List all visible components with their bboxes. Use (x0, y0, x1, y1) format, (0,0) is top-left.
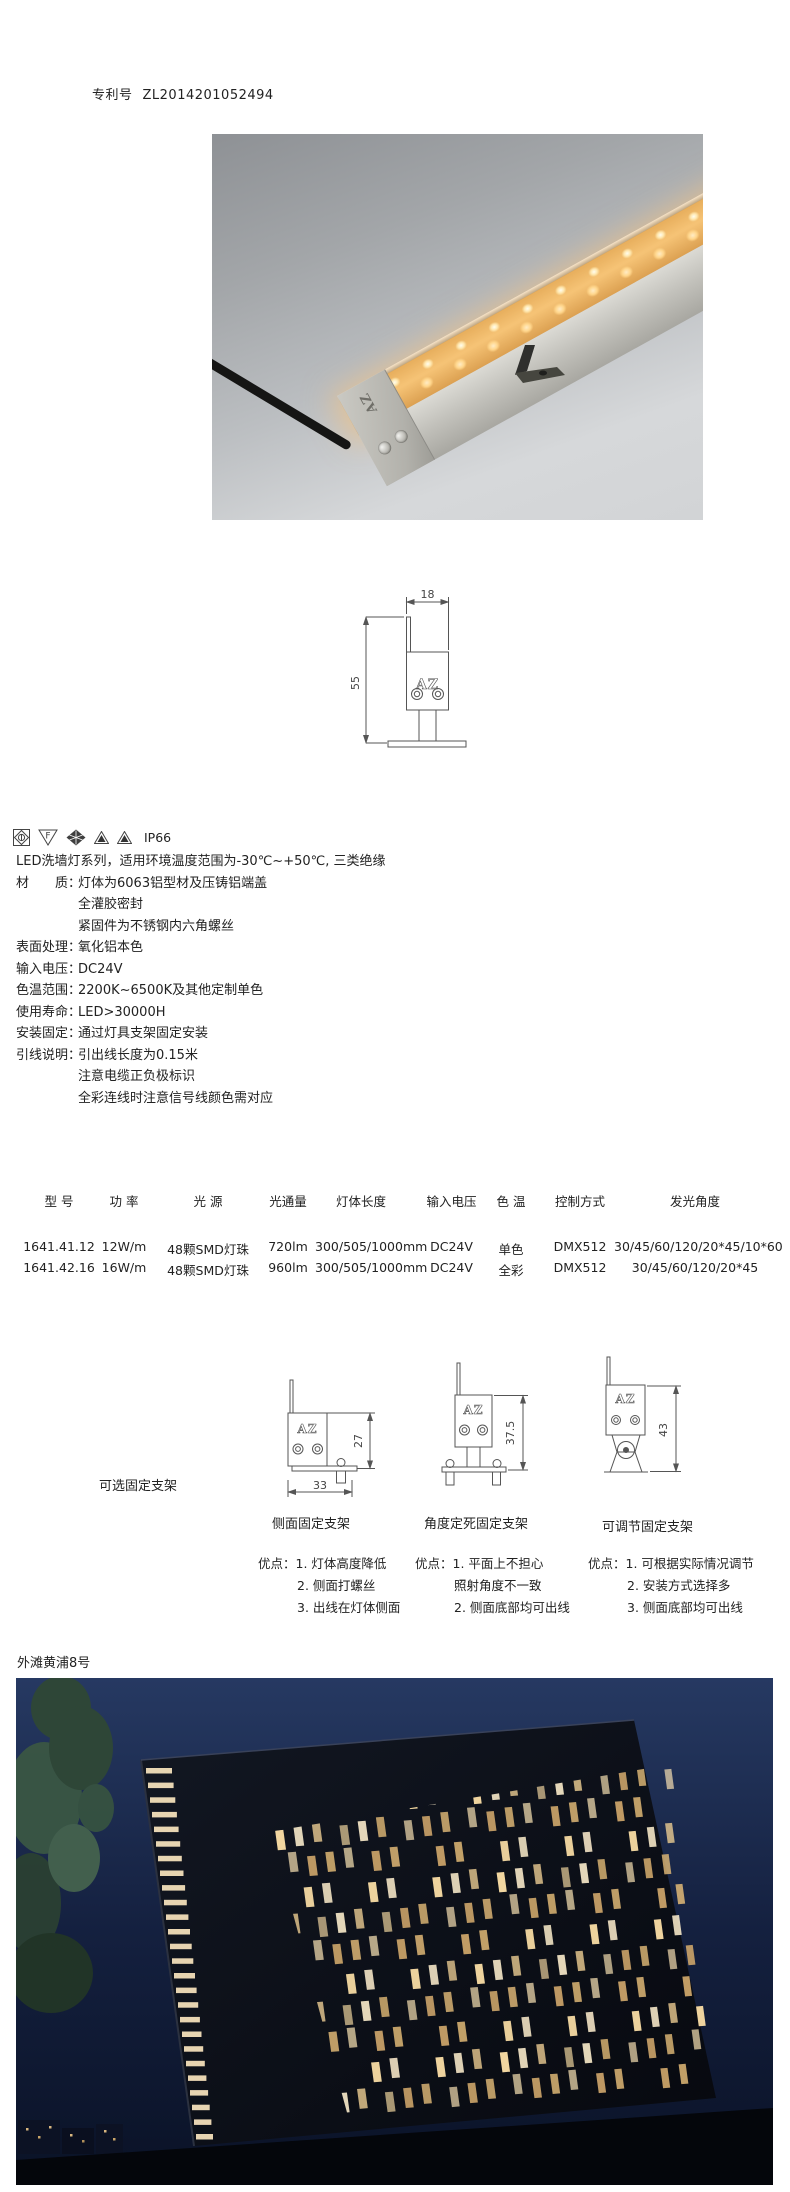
bracket-advantages-3: 优点：1. 可根据实际情况调节 2. 安装方式选择多 3. 侧面底部均可出线 (588, 1553, 754, 1619)
table-cell: 48颗SMD灯珠 (163, 1239, 253, 1260)
flame-triangle-mark-icon (117, 831, 132, 844)
flame-triangle-mark-icon (94, 831, 109, 844)
dim-width-label: 18 (421, 588, 435, 601)
column-power: 功 率 12W/m 16W/m (96, 1191, 152, 1281)
spec-row: 注意电缆正负极标识 (16, 1065, 386, 1087)
brackets-section-label: 可选固定支架 (99, 1475, 177, 1494)
spec-row: 使用寿命：LED>30000H (16, 1001, 386, 1023)
patent-label: 专利号 (92, 88, 133, 103)
bracket-adjustable-drawing: AZ 43 (604, 1357, 681, 1472)
drawing-fin (407, 617, 411, 652)
building-facade (141, 1720, 716, 2146)
column-light-source: 光 源 48颗SMD灯珠 48颗SMD灯珠 (163, 1191, 253, 1281)
column-input-voltage: 输入电压 DC24V DC24V (424, 1191, 479, 1281)
bracket-height-dim: 43 (657, 1423, 670, 1437)
brand-logo: AZ (415, 677, 439, 693)
drawing-stem (419, 710, 436, 741)
table-cell: 30/45/60/120/20*45 (614, 1260, 776, 1281)
table-cell: 300/505/1000mm (315, 1260, 407, 1281)
advantages-label: 优点： (415, 1556, 453, 1571)
bracket-caption: 侧面固定支架 (272, 1513, 350, 1532)
brand-logo: AZ (357, 390, 381, 416)
table-cell: 30/45/60/120/20*45/10*60 (614, 1239, 776, 1260)
spec-row: 材 质：灯体为6063铝型材及压铸铝端盖 (16, 872, 386, 894)
bracket-advantages-2: 优点：1. 平面上不担心 照射角度不一致 2. 侧面底部均可出线 (415, 1553, 570, 1619)
table-cell: DC24V (424, 1239, 479, 1260)
advantages-label: 优点： (258, 1556, 296, 1571)
spec-row: 全灌胶密封 (16, 893, 386, 915)
advantages-label: 优点： (588, 1556, 626, 1571)
spec-row: 全彩连线时注意信号线颜色需对应 (16, 1087, 386, 1109)
advantage-item: 优点：1. 平面上不担心 (415, 1553, 570, 1575)
bracket-height-dim: 37.5 (504, 1421, 517, 1446)
brand-logo: AZ (614, 1392, 635, 1406)
product-description: LED洗墙灯系列，适用环境温度范围为-30℃~+50℃, 三类绝缘 材 质：灯体… (16, 850, 386, 1108)
table-cell: 16W/m (96, 1260, 152, 1281)
spec-row: 输入电压：DC24V (16, 958, 386, 980)
spec-row: 紧固件为不锈钢内六角螺丝 (16, 915, 386, 937)
table-cell: 12W/m (96, 1239, 152, 1260)
table-cell: 720lm (254, 1239, 322, 1260)
patent-line: 专利号ZL2014201052494 (92, 84, 274, 103)
bracket-fixed-angle-drawing: AZ 37.5 (442, 1363, 528, 1485)
spec-table: 型 号 1641.41.12 1641.42.16 功 率 12W/m 16W/… (0, 1191, 790, 1286)
spec-row: 表面处理：氧化铝本色 (16, 936, 386, 958)
brand-logo: AZ (462, 1403, 483, 1417)
column-body-length: 灯体长度 300/505/1000mm 300/505/1000mm (315, 1191, 407, 1281)
dim-height-label: 55 (349, 676, 362, 690)
advantage-item: 2. 侧面打螺丝 (297, 1575, 400, 1597)
table-cell: 48颗SMD灯珠 (163, 1260, 253, 1281)
column-luminous-flux: 光通量 720lm 960lm (254, 1191, 322, 1281)
f-triangle-mark-icon: F (38, 829, 58, 846)
advantage-item: 优点：1. 灯体高度降低 (258, 1553, 400, 1575)
bracket-advantages-1: 优点：1. 灯体高度降低 2. 侧面打螺丝 3. 出线在灯体侧面 (258, 1553, 400, 1619)
diamond-mesh-mark-icon (66, 829, 86, 846)
drawing-base (388, 741, 466, 747)
spec-row: 引线说明：引出线长度为0.15米 (16, 1044, 386, 1066)
table-cell: DMX512 (547, 1260, 613, 1281)
svg-text:F: F (45, 831, 50, 841)
column-beam-angle: 发光角度 30/45/60/120/20*45/10*60 30/45/60/1… (614, 1191, 776, 1281)
bracket-drawings: AZ 27 33 AZ 37.5 AZ (240, 1350, 710, 1505)
advantage-item: 2. 安装方式选择多 (627, 1575, 754, 1597)
led-bar: AZ (337, 134, 703, 486)
dimension-drawing: 18 55 AZ (340, 588, 480, 764)
product-photo: AZ (212, 134, 703, 520)
column-model: 型 号 1641.41.12 1641.42.16 (10, 1191, 108, 1281)
bracket-width-dim: 33 (313, 1479, 327, 1492)
column-color-temp: 色 温 单色 全彩 (489, 1191, 533, 1281)
table-cell: DC24V (424, 1260, 479, 1281)
bracket-height-dim: 27 (352, 1434, 365, 1448)
table-cell: 1641.42.16 (10, 1260, 108, 1281)
advantage-item: 3. 出线在灯体侧面 (297, 1597, 400, 1619)
advantage-item: 3. 侧面底部均可出线 (627, 1597, 754, 1619)
page: { "patent": {"label": "专利号", "number": "… (0, 0, 790, 2192)
ip-rating: IP66 (144, 830, 171, 845)
table-cell: 960lm (254, 1260, 322, 1281)
bracket-caption: 角度定死固定支架 (424, 1513, 528, 1532)
bracket-side-mount-drawing: AZ 27 33 (288, 1380, 375, 1497)
column-control: 控制方式 DMX512 DMX512 (547, 1191, 613, 1281)
spec-row: 安装固定：通过灯具支架固定安装 (16, 1022, 386, 1044)
patent-number: ZL2014201052494 (143, 88, 274, 103)
series-intro: LED洗墙灯系列，适用环境温度范围为-30℃~+50℃, 三类绝缘 (16, 850, 386, 872)
table-cell: 300/505/1000mm (315, 1239, 407, 1260)
screw-icon (392, 428, 410, 446)
diamond-lens-mark-icon (13, 829, 30, 846)
advantage-item: 照射角度不一致 (454, 1575, 570, 1597)
advantage-item: 2. 侧面底部均可出线 (454, 1597, 570, 1619)
brand-logo: AZ (296, 1422, 317, 1436)
spec-row: 色温范围：2200K~6500K及其他定制单色 (16, 979, 386, 1001)
table-cell: DMX512 (547, 1239, 613, 1260)
table-cell: 全彩 (489, 1260, 533, 1281)
table-cell: 单色 (489, 1239, 533, 1260)
project-caption: 外滩黄浦8号 (17, 1652, 90, 1671)
table-cell: 1641.41.12 (10, 1239, 108, 1260)
bracket-caption: 可调节固定支架 (602, 1516, 693, 1535)
certifications-row: F IP66 (13, 828, 171, 846)
screw-icon (376, 439, 394, 457)
advantage-item: 优点：1. 可根据实际情况调节 (588, 1553, 754, 1575)
mounting-bracket-photo (507, 345, 567, 385)
power-cable (212, 357, 352, 451)
project-photo (16, 1678, 773, 2185)
